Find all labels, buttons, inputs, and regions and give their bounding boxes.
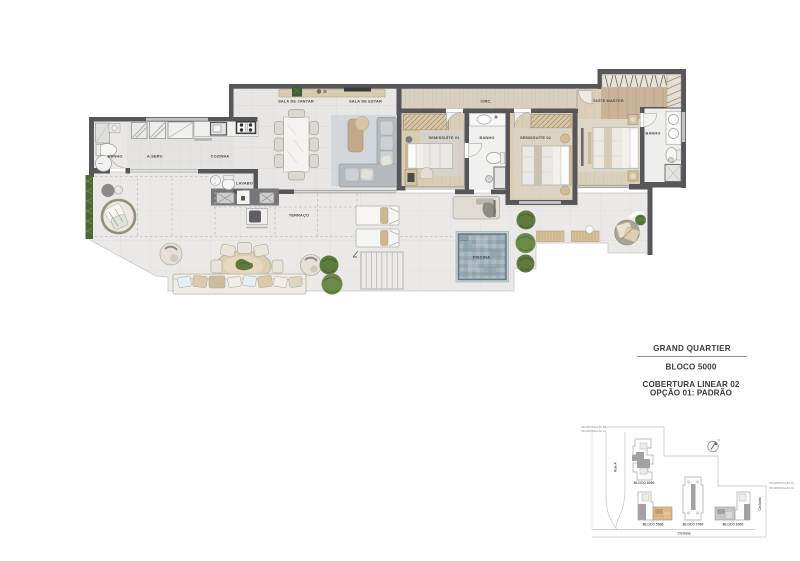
svg-text:SEMISSUÍTE 01: SEMISSUÍTE 01 xyxy=(429,135,461,140)
svg-text:A.SERV.: A.SERV. xyxy=(147,154,163,159)
svg-text:TERRAÇO: TERRAÇO xyxy=(289,213,309,218)
svg-text:BANHO: BANHO xyxy=(479,135,494,140)
svg-text:CIRC.: CIRC. xyxy=(480,99,491,104)
svg-text:BLOCO 5000: BLOCO 5000 xyxy=(666,363,717,372)
svg-text:Ciclovia: Ciclovia xyxy=(758,497,762,510)
svg-text:COZINHA: COZINHA xyxy=(211,154,230,159)
svg-text:BLOCO 5000: BLOCO 5000 xyxy=(643,523,664,527)
svg-text:SEMISSUÍTE 02: SEMISSUÍTE 02 xyxy=(520,135,552,140)
svg-text:OPÇÃO 01: PADRÃO: OPÇÃO 01: PADRÃO xyxy=(650,389,732,398)
svg-text:BANHO: BANHO xyxy=(107,154,122,159)
svg-text:BLOCO 7000: BLOCO 7000 xyxy=(683,523,704,527)
svg-text:N: N xyxy=(718,438,720,442)
svg-text:LAVABO: LAVABO xyxy=(236,181,253,186)
svg-text:BANHO: BANHO xyxy=(645,131,660,136)
svg-text:Ciclovia: Ciclovia xyxy=(677,532,690,536)
svg-text:GRAND QUARTIER: GRAND QUARTIER xyxy=(653,344,731,353)
svg-text:BLOCO 6000: BLOCO 6000 xyxy=(723,523,744,527)
svg-text:BLOCO 8000: BLOCO 8000 xyxy=(634,481,655,485)
svg-text:SALA DE JANTAR: SALA DE JANTAR xyxy=(278,99,314,104)
svg-text:Rua A: Rua A xyxy=(614,462,618,472)
svg-text:SALA DE ESTAR: SALA DE ESTAR xyxy=(349,99,382,104)
svg-text:PISCINA: PISCINA xyxy=(473,256,491,260)
svg-text:SUÍTE MASTER: SUÍTE MASTER xyxy=(593,98,624,103)
